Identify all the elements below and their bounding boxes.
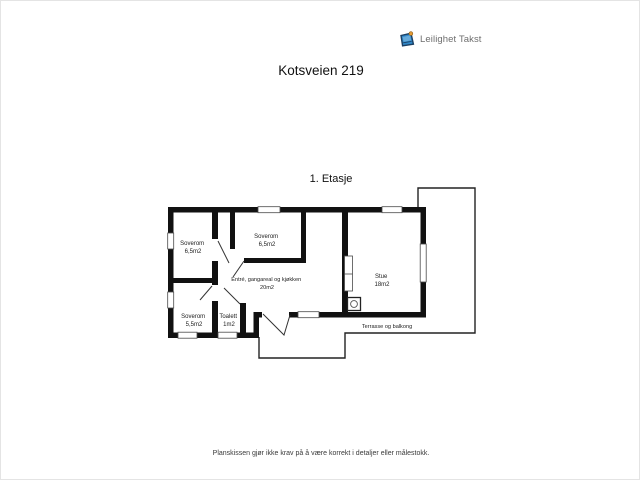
room-label-bedroom3: Soverom 5,5m2	[181, 314, 207, 328]
room-label-bedroom1: Soverom 6,5m2	[180, 241, 206, 255]
floorplan-document-page: Leilighet Takst Kotsveien 219 1. Etasje	[0, 0, 640, 480]
room-label-livingroom: Stue 18m2	[374, 274, 390, 288]
door-bedroom2	[233, 261, 244, 277]
wall-bedroom2-right	[301, 207, 306, 263]
disclaimer-text: Planskissen gjør ikke krav på å være kor…	[213, 450, 430, 457]
room-label-hall-kitchen: Entré, gangareal og kjøkken 20m2	[231, 277, 303, 291]
terrace-outline	[259, 188, 475, 358]
window-bottom-hall	[298, 312, 319, 318]
window-left-bedroom1	[168, 233, 174, 249]
wall-bedroom1-right-upper	[212, 207, 218, 239]
door-toilet	[224, 288, 240, 304]
wall-bedroom2-bottom	[244, 258, 306, 263]
fireplace-symbol	[348, 298, 361, 311]
door-bedroom3	[200, 286, 212, 300]
room-label-toilet: Toalett 1m2	[219, 314, 238, 328]
window-left-bedroom3	[168, 292, 174, 308]
wall-toilet-right	[240, 303, 246, 338]
wall-bedroom2-left	[230, 207, 235, 249]
door-bedroom1	[218, 241, 229, 263]
wall-bedrooms-divider	[168, 278, 218, 283]
wall-left	[168, 207, 174, 338]
room-label-bedroom2: Soverom 6,5m2	[254, 234, 280, 248]
window-right-livingroom	[420, 244, 426, 282]
window-top-livingroom	[382, 207, 402, 213]
livingroom-fixtures	[345, 256, 361, 311]
window-top-bedroom2	[258, 207, 280, 213]
terrace-label: Terrasse og balkong	[362, 324, 412, 330]
window-bottom-bedroom3	[178, 332, 197, 338]
window-bottom-toilet	[218, 332, 237, 338]
floorplan-drawing: Soverom 6,5m2 Soverom 6,5m2 Entré, ganga…	[1, 1, 639, 479]
wall-toilet-left	[212, 301, 218, 338]
kitchen-counter-symbol	[345, 256, 353, 291]
